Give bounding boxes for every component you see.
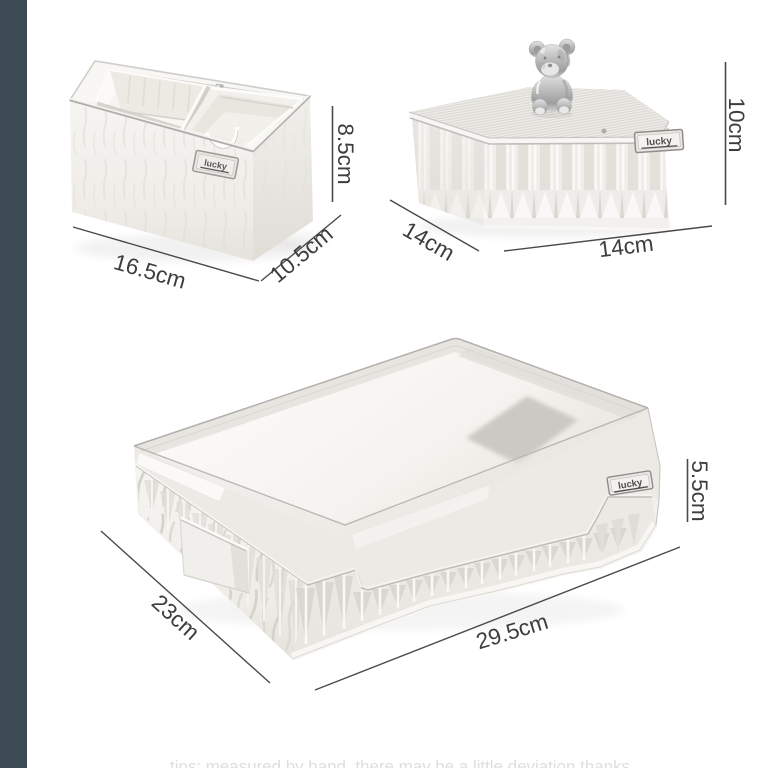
svg-text:tips: measured by hand, there: tips: measured by hand, there may be a l… — [170, 757, 630, 768]
svg-text:10cm: 10cm — [724, 97, 749, 152]
svg-text:14cm: 14cm — [597, 231, 655, 263]
svg-text:8.5cm: 8.5cm — [333, 123, 358, 184]
svg-text:5.5cm: 5.5cm — [687, 460, 712, 521]
